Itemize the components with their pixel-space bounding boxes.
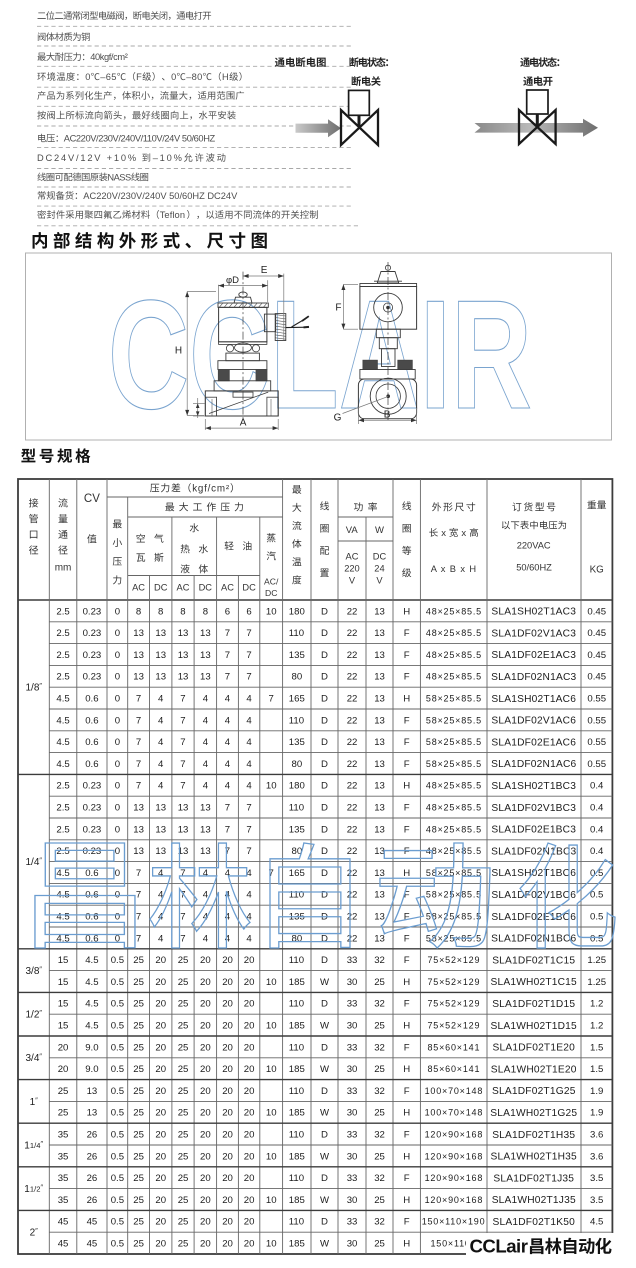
svg-text:H: H [403, 1151, 410, 1162]
svg-text:0: 0 [115, 694, 120, 705]
svg-text:4: 4 [158, 694, 164, 705]
svg-text:10: 10 [266, 1064, 277, 1075]
svg-text:40kgf/cm²: 40kgf/cm² [90, 52, 128, 62]
svg-text:48×25×85.5: 48×25×85.5 [426, 650, 482, 660]
svg-text:20: 20 [200, 955, 211, 966]
svg-text:25: 25 [133, 1086, 144, 1097]
svg-text:4.5: 4.5 [56, 694, 69, 705]
svg-text:D: D [321, 1173, 328, 1184]
svg-text:SLA1DF02N1AC3: SLA1DF02N1AC3 [491, 672, 576, 683]
svg-text:0.6: 0.6 [85, 912, 98, 923]
svg-text:H: H [403, 1195, 410, 1206]
svg-text:20: 20 [222, 1108, 233, 1119]
svg-text:26: 26 [87, 1130, 98, 1141]
svg-text:45: 45 [58, 1239, 69, 1250]
svg-text:F: F [404, 628, 410, 639]
svg-text:22: 22 [347, 803, 358, 814]
svg-text:SLA1DF02T1D15: SLA1DF02T1D15 [492, 999, 575, 1010]
svg-text:13: 13 [374, 694, 385, 705]
svg-text:165: 165 [289, 868, 305, 879]
svg-text:SLA1SH02T1AC6: SLA1SH02T1AC6 [491, 694, 576, 705]
svg-text:F: F [404, 999, 410, 1010]
svg-text:100×70×148: 100×70×148 [425, 1086, 484, 1096]
svg-text:1.2: 1.2 [590, 999, 603, 1010]
svg-text:32: 32 [374, 1086, 385, 1097]
svg-text:48×25×85.5: 48×25×85.5 [426, 824, 482, 834]
svg-text:25: 25 [133, 955, 144, 966]
svg-text:13: 13 [87, 1086, 98, 1097]
svg-text:22: 22 [347, 606, 358, 617]
svg-text:10: 10 [266, 1195, 277, 1206]
svg-text:20: 20 [222, 1195, 233, 1206]
svg-text:0.4: 0.4 [590, 846, 604, 857]
svg-text:0.4: 0.4 [590, 803, 604, 814]
svg-text:25: 25 [133, 1108, 144, 1119]
svg-text:F: F [404, 803, 410, 814]
svg-text:13: 13 [374, 803, 385, 814]
svg-text:30: 30 [347, 1195, 358, 1206]
svg-text:110: 110 [289, 628, 304, 639]
svg-text:0.55: 0.55 [587, 694, 606, 705]
svg-text:D: D [321, 1042, 328, 1053]
svg-text:185: 185 [289, 1064, 305, 1075]
svg-text:3/8: 3/8 [26, 966, 40, 977]
svg-text:185: 185 [289, 1021, 305, 1032]
svg-text:0: 0 [115, 672, 120, 683]
svg-text:30: 30 [347, 1239, 358, 1250]
svg-text:D: D [321, 781, 328, 792]
svg-text:0: 0 [115, 846, 120, 857]
svg-text:35: 35 [58, 1151, 69, 1162]
svg-text:32: 32 [374, 1130, 385, 1141]
svg-text:″: ″ [39, 858, 42, 865]
svg-text:185: 185 [289, 1151, 305, 1162]
svg-text:25: 25 [133, 1064, 144, 1075]
svg-text:20: 20 [200, 1086, 211, 1097]
svg-text:185: 185 [289, 1108, 305, 1119]
svg-text:20: 20 [222, 1086, 233, 1097]
svg-text:15: 15 [58, 999, 69, 1010]
svg-text:25: 25 [133, 1239, 144, 1250]
svg-text:SLA1DF02V1AC3: SLA1DF02V1AC3 [491, 628, 576, 639]
svg-text:0.6: 0.6 [85, 759, 98, 770]
svg-text:0.6: 0.6 [85, 868, 98, 879]
svg-text:48×25×85.5: 48×25×85.5 [426, 803, 482, 813]
svg-text:22: 22 [347, 715, 358, 726]
svg-text:0.5: 0.5 [111, 1217, 124, 1228]
svg-text:0.6: 0.6 [85, 694, 98, 705]
svg-text:20: 20 [244, 1064, 255, 1075]
svg-text:13: 13 [133, 628, 144, 639]
svg-text:20: 20 [200, 1064, 211, 1075]
svg-text:13: 13 [374, 650, 385, 661]
svg-text:25: 25 [178, 1151, 189, 1162]
svg-text:9.0: 9.0 [85, 1042, 98, 1053]
svg-text:7: 7 [180, 868, 185, 879]
svg-text:10: 10 [266, 977, 277, 988]
svg-text:4: 4 [203, 694, 209, 705]
svg-text:F: F [404, 955, 410, 966]
svg-text:1.2: 1.2 [590, 1021, 603, 1032]
svg-text:0.4: 0.4 [590, 824, 604, 835]
svg-text:D: D [321, 650, 328, 661]
svg-text:4: 4 [158, 933, 164, 944]
svg-text:SLA1DF02E1AC6: SLA1DF02E1AC6 [491, 737, 576, 748]
svg-text:7: 7 [180, 737, 185, 748]
svg-text:22: 22 [347, 759, 358, 770]
svg-text:F: F [404, 1130, 410, 1141]
svg-text:20: 20 [244, 1151, 255, 1162]
svg-text:7: 7 [180, 933, 185, 944]
svg-text:D: D [321, 715, 328, 726]
svg-text:0.5: 0.5 [111, 1086, 124, 1097]
svg-text:0.5: 0.5 [111, 1173, 124, 1184]
svg-text:H: H [403, 1021, 410, 1032]
svg-text:13: 13 [374, 890, 385, 901]
svg-text:20: 20 [222, 1042, 233, 1053]
svg-text:48×25×85.5: 48×25×85.5 [426, 628, 482, 638]
svg-text:4: 4 [203, 912, 209, 923]
svg-text:185: 185 [289, 1239, 305, 1250]
svg-text:20: 20 [155, 1108, 166, 1119]
svg-text:20: 20 [58, 1064, 69, 1075]
svg-text:3.5: 3.5 [590, 1195, 603, 1206]
svg-text:15: 15 [58, 977, 69, 988]
svg-text:180: 180 [289, 781, 305, 792]
svg-text:58×25×85.5: 58×25×85.5 [426, 737, 482, 747]
svg-text:25: 25 [133, 1042, 144, 1053]
svg-text:3/4: 3/4 [26, 1053, 40, 1064]
svg-text:10: 10 [266, 1021, 277, 1032]
svg-text:20: 20 [244, 1086, 255, 1097]
svg-text:25: 25 [58, 1108, 69, 1119]
svg-text:7: 7 [180, 912, 185, 923]
svg-text:SLA1WH02T1H35: SLA1WH02T1H35 [491, 1152, 578, 1163]
svg-text:″: ″ [41, 1185, 44, 1192]
svg-text:20: 20 [200, 1217, 211, 1228]
svg-text:W: W [320, 1021, 330, 1032]
svg-text:D: D [321, 694, 328, 705]
svg-text:0.5: 0.5 [590, 933, 603, 944]
svg-text:7: 7 [136, 781, 141, 792]
svg-text:22: 22 [347, 672, 358, 683]
svg-text:4.5: 4.5 [85, 1021, 98, 1032]
svg-text:F: F [335, 303, 341, 314]
svg-text:2.5: 2.5 [56, 803, 69, 814]
svg-text:26: 26 [87, 1173, 98, 1184]
svg-text:F: F [404, 824, 410, 835]
svg-text:20: 20 [244, 1217, 255, 1228]
svg-text:F: F [404, 759, 410, 770]
svg-text:13: 13 [374, 912, 385, 923]
svg-text:Teflon: Teflon [160, 210, 185, 220]
svg-text:0.5: 0.5 [111, 1195, 124, 1206]
svg-text:1.5: 1.5 [590, 1042, 603, 1053]
svg-text:13: 13 [178, 650, 189, 661]
svg-text:F: F [404, 650, 410, 661]
svg-text:20: 20 [244, 1130, 255, 1141]
svg-text:4: 4 [203, 933, 209, 944]
svg-text:8: 8 [136, 606, 141, 617]
svg-text:7: 7 [136, 759, 141, 770]
svg-text:0: 0 [115, 650, 120, 661]
svg-text:F: F [404, 715, 410, 726]
svg-text:185: 185 [289, 1195, 305, 1206]
svg-text:20: 20 [244, 955, 255, 966]
svg-text:25: 25 [374, 977, 385, 988]
svg-text:F: F [404, 737, 410, 748]
svg-text:25: 25 [133, 1021, 144, 1032]
svg-text:33: 33 [347, 1042, 358, 1053]
svg-text:33: 33 [347, 999, 358, 1010]
svg-text:13: 13 [374, 846, 385, 857]
svg-text:110: 110 [289, 890, 304, 901]
svg-text:4: 4 [225, 737, 231, 748]
svg-text:22: 22 [347, 933, 358, 944]
svg-text:4: 4 [246, 781, 252, 792]
svg-text:V: V [376, 576, 383, 586]
svg-text:13: 13 [155, 650, 166, 661]
svg-text:25: 25 [178, 1064, 189, 1075]
svg-text:″: ″ [39, 1054, 42, 1061]
svg-text:F: F [404, 1042, 410, 1053]
svg-text:F: F [404, 933, 410, 944]
svg-text:4.5: 4.5 [56, 715, 69, 726]
svg-text:4: 4 [203, 737, 209, 748]
svg-text:13: 13 [374, 824, 385, 835]
svg-text:25: 25 [178, 1195, 189, 1206]
svg-text:2.5: 2.5 [56, 606, 69, 617]
svg-text:NASS: NASS [107, 172, 131, 182]
svg-text:W: W [320, 1064, 330, 1075]
svg-text:4.5: 4.5 [85, 999, 98, 1010]
svg-text:35: 35 [58, 1130, 69, 1141]
svg-text:25: 25 [178, 1173, 189, 1184]
svg-text:22: 22 [347, 650, 358, 661]
svg-text:48×25×85.5: 48×25×85.5 [426, 672, 482, 682]
svg-text:0.45: 0.45 [587, 628, 606, 639]
svg-text:0.23: 0.23 [83, 824, 102, 835]
svg-text:0.23: 0.23 [83, 650, 102, 661]
svg-text:6: 6 [246, 606, 251, 617]
svg-text:F: F [404, 1217, 410, 1228]
svg-text:13: 13 [178, 824, 189, 835]
svg-text:SLA1DF02T1K50: SLA1DF02T1K50 [493, 1217, 576, 1228]
svg-text:20: 20 [200, 1239, 211, 1250]
svg-text:13: 13 [200, 846, 211, 857]
svg-text:10: 10 [266, 781, 277, 792]
svg-text:4: 4 [203, 781, 209, 792]
svg-text:20: 20 [244, 1021, 255, 1032]
svg-text:4.5: 4.5 [85, 977, 98, 988]
svg-text:DC: DC [265, 588, 277, 598]
svg-text:13: 13 [133, 672, 144, 683]
svg-text:4.5: 4.5 [56, 759, 69, 770]
svg-text:AC/: AC/ [264, 577, 279, 587]
svg-text:20: 20 [155, 1042, 166, 1053]
svg-text:7: 7 [225, 650, 230, 661]
svg-text:D: D [321, 955, 328, 966]
svg-text:SLA1SH02T1BC3: SLA1SH02T1BC3 [491, 781, 576, 792]
svg-text:4.5: 4.5 [85, 955, 98, 966]
svg-text:″: ″ [35, 1228, 38, 1235]
svg-text:13: 13 [178, 803, 189, 814]
svg-text:25: 25 [374, 1151, 385, 1162]
svg-text:8: 8 [158, 606, 163, 617]
svg-text:45: 45 [87, 1239, 98, 1250]
svg-text:20: 20 [155, 1086, 166, 1097]
svg-text:SLA1DF02E1BC3: SLA1DF02E1BC3 [491, 825, 576, 836]
svg-text:7: 7 [225, 628, 230, 639]
svg-text:4: 4 [225, 868, 231, 879]
svg-text:–65: –65 [100, 72, 116, 82]
svg-text:DC: DC [242, 583, 256, 593]
svg-text:SLA1WH02T1J35: SLA1WH02T1J35 [492, 1195, 576, 1206]
svg-text:AC: AC [132, 583, 145, 593]
svg-text:25: 25 [133, 1130, 144, 1141]
svg-text:1/4: 1/4 [26, 857, 40, 868]
svg-text:25: 25 [178, 977, 189, 988]
svg-text:13: 13 [155, 803, 166, 814]
svg-text:4.5: 4.5 [590, 1217, 603, 1228]
svg-text:58×25×85.5: 58×25×85.5 [426, 694, 482, 704]
svg-text:7: 7 [269, 694, 274, 705]
svg-text:1/8: 1/8 [26, 683, 40, 694]
svg-text:0: 0 [115, 715, 120, 726]
svg-text:10: 10 [266, 1108, 277, 1119]
svg-text:20: 20 [222, 1064, 233, 1075]
svg-text:F: F [404, 912, 410, 923]
svg-text:75×52×129: 75×52×129 [428, 999, 481, 1009]
svg-text:25: 25 [178, 955, 189, 966]
svg-text:7: 7 [246, 803, 251, 814]
svg-text:AC: AC [346, 552, 359, 562]
svg-text:4: 4 [158, 868, 164, 879]
svg-text:13: 13 [374, 715, 385, 726]
svg-text:2.5: 2.5 [56, 846, 69, 857]
svg-text:25: 25 [133, 977, 144, 988]
svg-text:7: 7 [180, 781, 185, 792]
svg-text:″: ″ [39, 967, 42, 974]
svg-text:45: 45 [87, 1217, 98, 1228]
svg-text:20: 20 [222, 955, 233, 966]
svg-text:25: 25 [374, 1021, 385, 1032]
svg-text:0: 0 [115, 781, 120, 792]
svg-text:V: V [349, 576, 356, 586]
svg-text:80: 80 [292, 759, 303, 770]
svg-text:0: 0 [115, 628, 120, 639]
svg-text:20: 20 [155, 955, 166, 966]
svg-text:13: 13 [374, 781, 385, 792]
svg-text:G: G [334, 413, 342, 424]
svg-text:W: W [320, 1151, 330, 1162]
svg-text:180: 180 [289, 606, 305, 617]
svg-text:220VAC: 220VAC [517, 541, 551, 551]
svg-text:110: 110 [289, 999, 304, 1010]
svg-text:0: 0 [115, 759, 120, 770]
svg-text:13: 13 [155, 628, 166, 639]
svg-text:20: 20 [200, 1130, 211, 1141]
svg-text:13: 13 [133, 846, 144, 857]
svg-text:SLA1SH02T1BC6: SLA1SH02T1BC6 [491, 868, 576, 879]
svg-text:0.5: 0.5 [111, 1151, 124, 1162]
svg-text:7: 7 [246, 628, 251, 639]
svg-text:50/60HZ: 50/60HZ [516, 563, 552, 573]
svg-text:0.45: 0.45 [587, 650, 606, 661]
svg-text:0.55: 0.55 [587, 759, 606, 770]
svg-text:CV: CV [84, 493, 100, 505]
svg-text:4.5: 4.5 [56, 912, 69, 923]
svg-text:7: 7 [225, 846, 230, 857]
svg-text:120×90×168: 120×90×168 [425, 1130, 484, 1140]
svg-text:25: 25 [58, 1086, 69, 1097]
svg-text:20: 20 [244, 1239, 255, 1250]
svg-text:32: 32 [374, 999, 385, 1010]
svg-text:F: F [404, 846, 410, 857]
svg-text:W: W [320, 1195, 330, 1206]
svg-text:13: 13 [155, 672, 166, 683]
svg-text:SLA1WH02T1C15: SLA1WH02T1C15 [491, 977, 578, 988]
svg-text:A x B x H: A x B x H [431, 564, 477, 574]
svg-text:4.5: 4.5 [56, 868, 69, 879]
svg-text:8: 8 [180, 606, 185, 617]
svg-text:25: 25 [374, 1108, 385, 1119]
svg-text:SLA1DF02V1AC6: SLA1DF02V1AC6 [491, 716, 576, 727]
svg-text:13: 13 [374, 672, 385, 683]
svg-text:110: 110 [289, 1217, 304, 1228]
svg-text:20: 20 [155, 999, 166, 1010]
svg-text:B: B [384, 410, 391, 421]
svg-text:SLA1DF02T1C15: SLA1DF02T1C15 [492, 955, 575, 966]
svg-text:0.4: 0.4 [590, 781, 604, 792]
svg-text:25: 25 [178, 1108, 189, 1119]
svg-text:20: 20 [200, 977, 211, 988]
svg-text:20: 20 [200, 1195, 211, 1206]
svg-text:13: 13 [200, 803, 211, 814]
svg-text:30: 30 [347, 1021, 358, 1032]
svg-text:48×25×85.5: 48×25×85.5 [426, 606, 482, 616]
svg-text:20: 20 [155, 1064, 166, 1075]
svg-text:25: 25 [178, 1042, 189, 1053]
svg-text:SLA1DF02E1AC3: SLA1DF02E1AC3 [491, 650, 576, 661]
svg-text:D: D [321, 628, 328, 639]
svg-text:0: 0 [85, 72, 90, 82]
svg-text:H: H [403, 1108, 410, 1119]
svg-text:75×52×129: 75×52×129 [428, 1021, 481, 1031]
svg-text:0.5: 0.5 [111, 1021, 124, 1032]
svg-text:W: W [320, 977, 330, 988]
svg-text:W: W [375, 525, 384, 536]
svg-text:0.5: 0.5 [111, 1108, 124, 1119]
svg-text:DC: DC [154, 583, 168, 593]
svg-text:4: 4 [225, 781, 231, 792]
svg-text:F: F [404, 1086, 410, 1097]
svg-text:20: 20 [244, 977, 255, 988]
svg-text:mm: mm [55, 563, 72, 574]
svg-text:25: 25 [178, 1086, 189, 1097]
svg-text:SLA1DF02N1AC6: SLA1DF02N1AC6 [491, 759, 576, 770]
svg-text:25: 25 [178, 999, 189, 1010]
svg-text:4: 4 [246, 759, 252, 770]
svg-text:H: H [403, 1064, 410, 1075]
svg-text:H: H [403, 1239, 410, 1250]
svg-text:45: 45 [58, 1217, 69, 1228]
svg-text:SLA1WH02T1D15: SLA1WH02T1D15 [491, 1021, 578, 1032]
svg-text:0: 0 [115, 824, 120, 835]
svg-text:SLA1DF02T1E20: SLA1DF02T1E20 [493, 1043, 576, 1054]
svg-text:25: 25 [178, 1217, 189, 1228]
svg-text:7: 7 [246, 672, 251, 683]
